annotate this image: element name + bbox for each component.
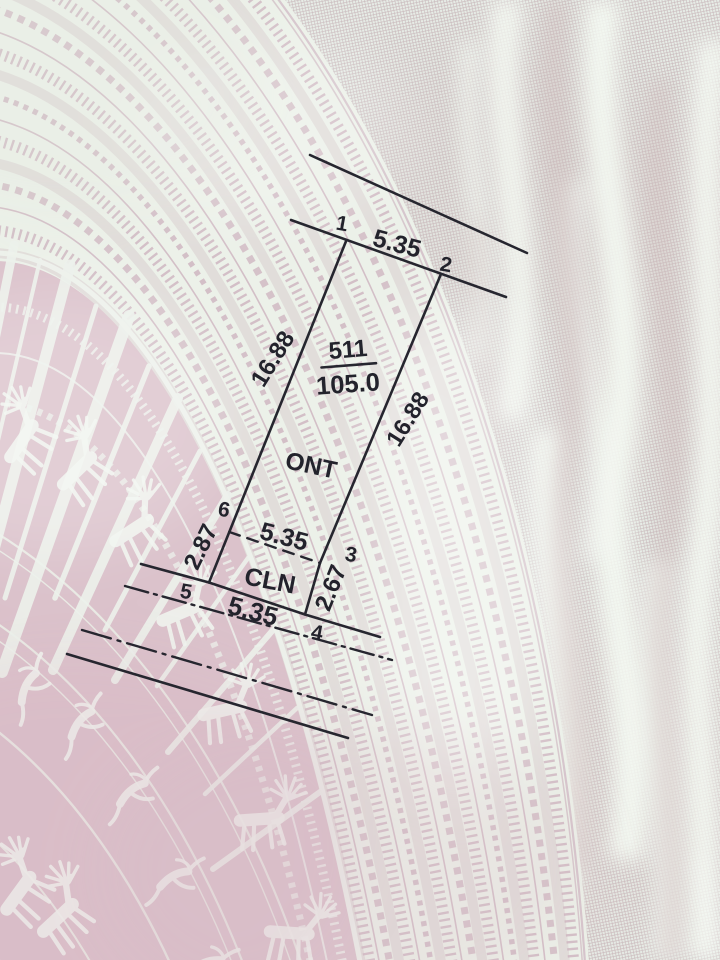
svg-text:511: 511 — [328, 335, 369, 365]
svg-text:105.0: 105.0 — [315, 368, 381, 400]
